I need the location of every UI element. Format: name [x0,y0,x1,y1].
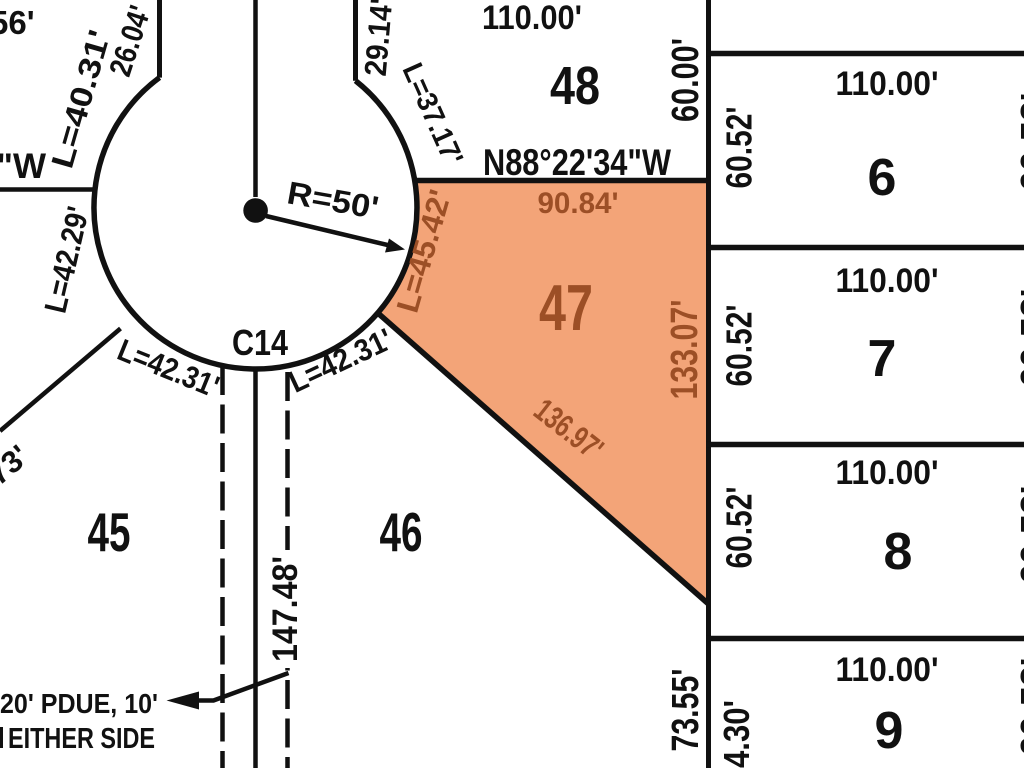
svg-text:7: 7 [868,330,897,388]
svg-text:EITHER SIDE: EITHER SIDE [8,723,155,755]
svg-text:60.52': 60.52' [1013,93,1024,192]
svg-text:6: 6 [868,149,897,207]
svg-text:90.84': 90.84' [538,187,619,220]
svg-text:147.48': 147.48' [266,556,305,662]
svg-text:60.52': 60.52' [1013,658,1024,757]
svg-text:110.00': 110.00' [836,651,939,689]
svg-text:73.55': 73.55' [665,669,707,752]
svg-text:29.14': 29.14' [358,0,400,77]
svg-text:20' PDUE, 10': 20' PDUE, 10' [0,688,158,719]
svg-text:"W: "W [0,147,46,186]
svg-text:47: 47 [539,271,593,344]
svg-text:4.30': 4.30' [716,700,757,768]
svg-text:9: 9 [875,702,904,760]
svg-text:C14: C14 [232,322,288,363]
svg-text:8: 8 [884,523,913,581]
svg-text:110.00': 110.00' [482,0,582,37]
svg-text:110.00': 110.00' [836,454,939,492]
svg-text:60.52': 60.52' [719,305,760,387]
svg-text:110.00': 110.00' [836,65,939,103]
svg-text:60.52': 60.52' [1013,486,1024,585]
svg-text:48: 48 [550,56,600,116]
svg-text:133.07': 133.07' [664,300,706,400]
svg-text:56': 56' [0,4,35,41]
svg-text:60.52': 60.52' [719,487,760,569]
svg-text:46: 46 [380,501,423,563]
svg-text:60.00': 60.00' [665,38,707,122]
svg-text:60.52': 60.52' [1013,289,1024,388]
svg-text:45: 45 [88,501,131,563]
svg-text:60.52': 60.52' [719,107,760,189]
svg-text:110.00': 110.00' [836,262,939,300]
svg-text:N88°22'34"W: N88°22'34"W [483,142,671,183]
